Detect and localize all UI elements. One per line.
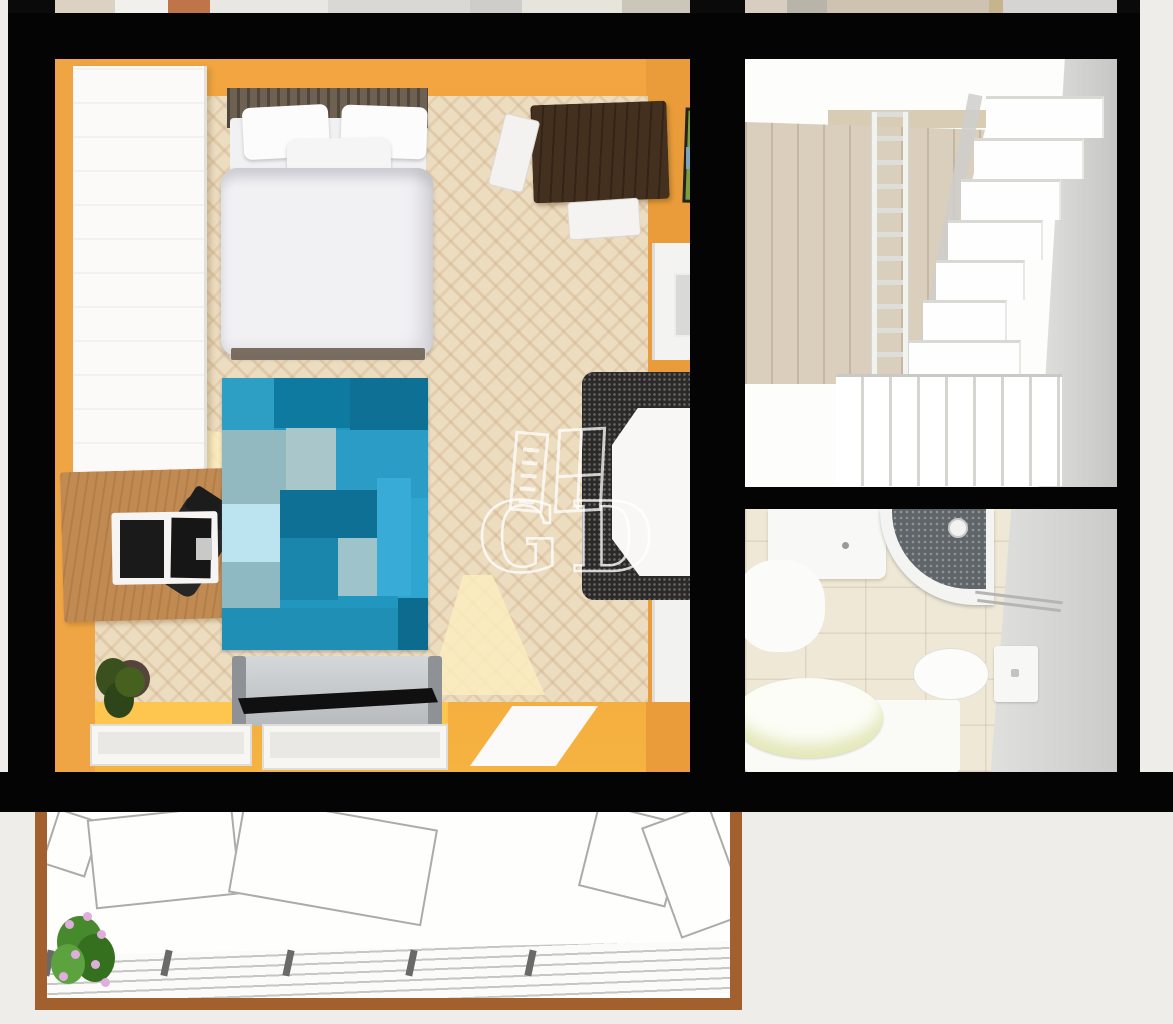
stair-step: [923, 300, 1007, 340]
rug-patch: [280, 538, 338, 600]
bathroom: [745, 509, 1117, 772]
upper-floor-segment: [210, 0, 328, 13]
armchair-seat: [612, 408, 690, 576]
upper-floor-strip: [8, 0, 1140, 13]
wall-right: [1117, 12, 1140, 812]
door-pane: [674, 273, 690, 337]
upper-floor-segment: [989, 0, 1003, 13]
stair-step: [974, 138, 1084, 179]
bedroom: [55, 59, 690, 772]
upper-floor-segment: [827, 0, 989, 13]
rug-patch: [222, 430, 286, 504]
balcony-frame-left: [35, 812, 47, 1010]
patchwork-rug: [222, 378, 428, 650]
balcony-frame-bottom: [35, 998, 742, 1010]
rug-patch: [222, 378, 274, 430]
pink-flower: [71, 950, 80, 959]
balustrade: [836, 374, 1062, 486]
stair-step: [986, 96, 1104, 138]
duvet: [221, 168, 433, 356]
staircase-hall: [745, 59, 1117, 487]
pink-flower: [59, 972, 68, 981]
wall-divider-right: [690, 487, 1140, 509]
ladder-railing: [872, 112, 908, 378]
rug-patch: [222, 504, 280, 562]
rug-patch: [274, 378, 350, 428]
upper-floor-segment: [787, 0, 827, 13]
balcony-frame-right: [730, 812, 742, 1010]
pink-flower: [97, 930, 106, 939]
open-window-sash: [228, 812, 438, 926]
rug-patch: [398, 598, 428, 650]
stair-step: [961, 179, 1061, 220]
wall-left: [8, 12, 55, 812]
plant-foliage: [115, 667, 145, 697]
open-window-sash: [87, 812, 242, 909]
toilet: [913, 648, 989, 700]
tv-stand-post: [232, 656, 246, 726]
shower-head: [948, 518, 968, 538]
laptop-screen: [120, 520, 164, 578]
wall-top: [8, 12, 1140, 59]
wall-bottom: [0, 772, 1173, 812]
rug-patch: [222, 608, 398, 650]
flush-button: [1011, 669, 1019, 677]
white-chair: [567, 198, 641, 241]
window-glass: [270, 732, 440, 758]
upper-floor-segment: [745, 0, 787, 13]
wardrobe: [73, 66, 207, 478]
wall-center: [690, 12, 745, 812]
laptop-touchpad: [196, 538, 212, 560]
window-glass: [98, 732, 244, 754]
upper-floor-segment: [470, 0, 522, 13]
sink-drain: [842, 542, 849, 549]
window-sill: [262, 724, 448, 770]
upper-floor-segment: [328, 0, 470, 13]
upper-floor-segment: [1003, 0, 1117, 13]
stair-step: [948, 220, 1043, 260]
pink-flower: [101, 978, 110, 987]
stair-step: [936, 260, 1025, 300]
upper-floor-segment: [168, 0, 210, 13]
upper-floor-segment: [115, 0, 170, 13]
shower-tray: [892, 509, 986, 589]
rug-patch: [350, 378, 428, 436]
balcony: [35, 812, 742, 1010]
bed-footboard: [231, 348, 425, 360]
pink-flower: [83, 912, 92, 921]
dining-table: [530, 101, 669, 204]
rug-patch: [286, 428, 336, 490]
window-sill: [90, 724, 252, 766]
rug-patch: [222, 562, 280, 608]
floorplan-3d-render: G D: [0, 0, 1173, 1024]
bathroom-gray-wall: [988, 509, 1117, 772]
upper-floor-segment: [622, 0, 690, 13]
upper-floor-segment: [522, 0, 622, 13]
door-lower-right: [652, 598, 690, 702]
upper-floor-segment: [55, 0, 115, 13]
pink-flower: [91, 960, 100, 969]
window-open-sash: [470, 706, 598, 766]
balcony-plant-foliage: [51, 944, 85, 984]
rug-patch: [377, 478, 411, 596]
white-fixture: [745, 560, 825, 652]
pink-flower: [65, 920, 74, 929]
